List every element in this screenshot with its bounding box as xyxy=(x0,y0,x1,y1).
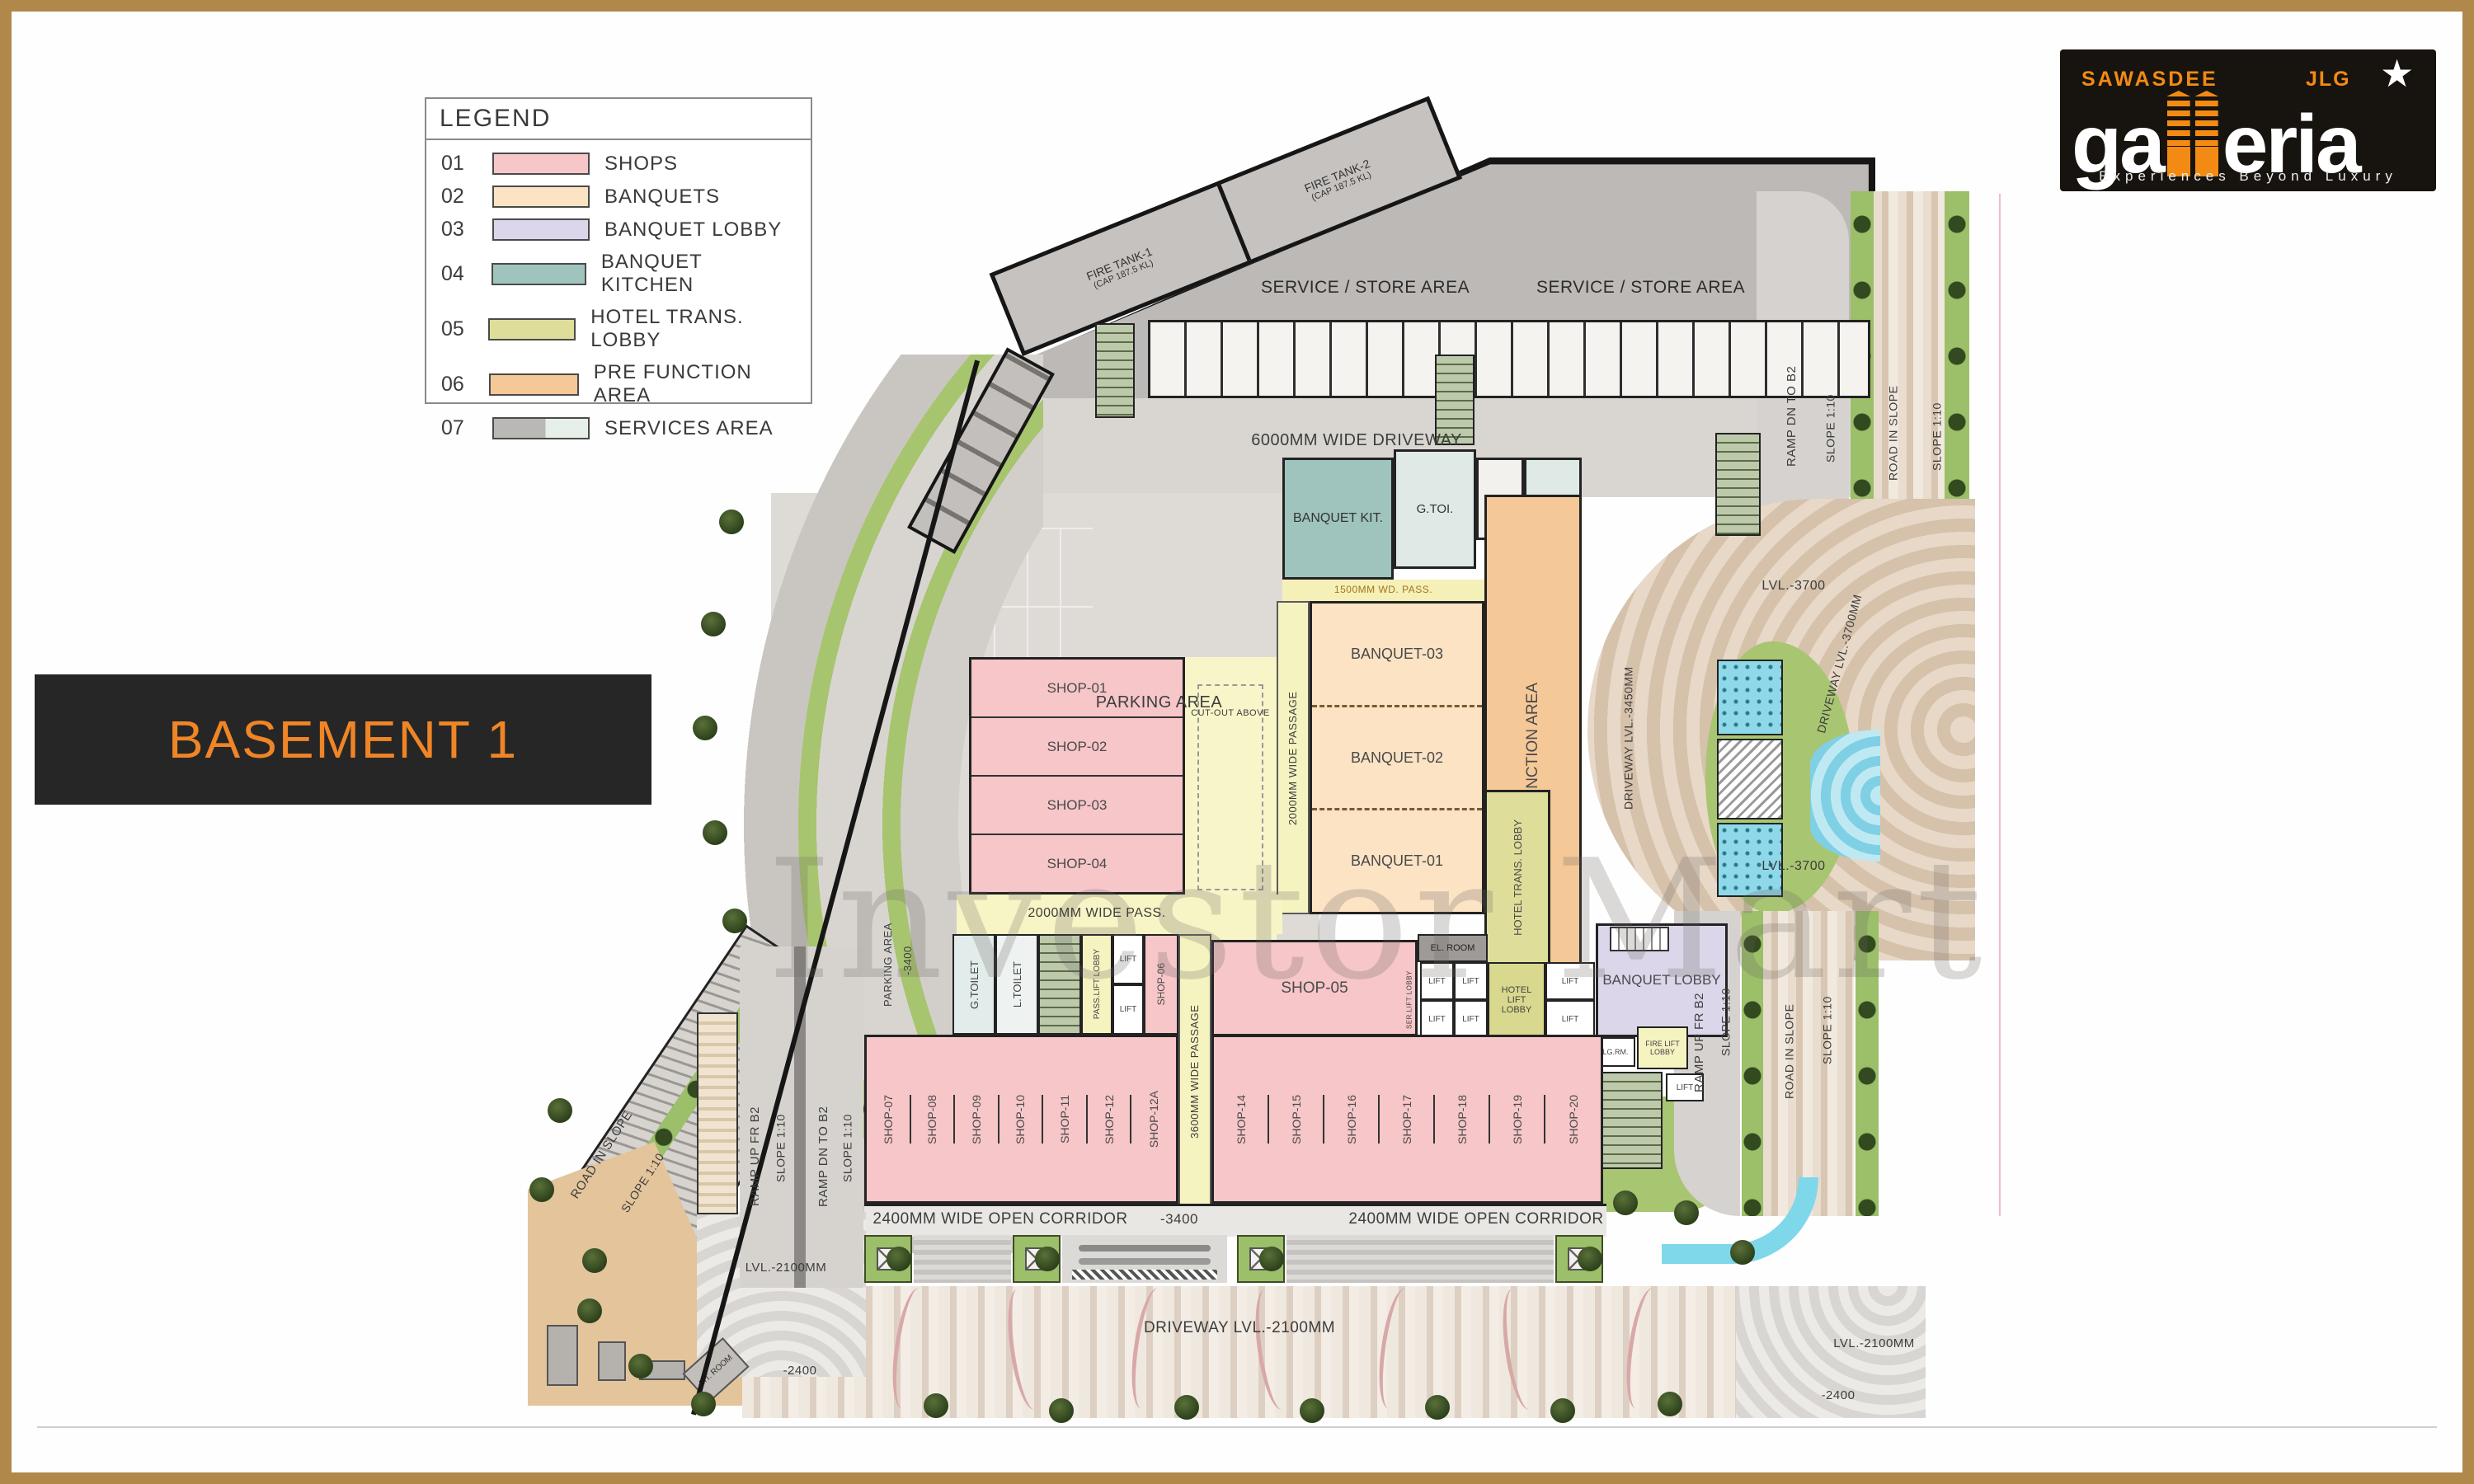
corridor-3400-value: -3400 xyxy=(1150,1209,1208,1230)
legend-label: SHOPS xyxy=(604,153,678,176)
stair-east xyxy=(1598,1072,1663,1169)
parking-stalls-row xyxy=(1148,320,1870,398)
banquet-hall-03: BANQUET-03 xyxy=(1312,603,1482,707)
slope-west-label-1: SLOPE 1:10 xyxy=(772,1072,790,1224)
service-store-label-1: SERVICE / STORE AREA xyxy=(1268,277,1462,298)
legend-label: PRE FUNCTION AREA xyxy=(594,361,796,407)
lg-room-label: LG.RM. xyxy=(1602,1048,1628,1056)
shops-left-block: SHOP-07 SHOP-08 SHOP-09 SHOP-10 SHOP-11 … xyxy=(864,1035,1178,1204)
passage-3600-label: 3600MM WIDE PASSAGE xyxy=(1182,960,1208,1183)
floor-plan-canvas: Investor Mart FIRE TANK-1 (CAP 187.5 KL)… xyxy=(0,0,2474,1484)
tree-icon xyxy=(582,1248,607,1273)
road-in-slope-ne-label: ROAD IN SLOPE xyxy=(1884,330,1903,536)
star-icon: ★ xyxy=(2380,51,2414,96)
driveway-3450-label: DRIVEWAY LVL.-3450MM xyxy=(1618,610,1639,866)
hatched-ramp-strip xyxy=(1072,1270,1217,1280)
lvl-2100-west-label: LVL.-2100MM xyxy=(736,1260,835,1276)
minus-2400-east-label: -2400 xyxy=(1811,1388,1865,1404)
fire-lift-lobby-label: FIRE LIFT LOBBY xyxy=(1641,1040,1684,1056)
tree-icon xyxy=(1425,1395,1450,1420)
banquet-03-label: BANQUET-03 xyxy=(1351,646,1443,663)
fire-lift-lobby: FIRE LIFT LOBBY xyxy=(1637,1026,1688,1069)
legend-label: BANQUET LOBBY xyxy=(604,218,782,242)
tree-icon xyxy=(1035,1247,1060,1271)
parking-3400-value: -3400 xyxy=(901,915,915,1006)
shop-17: SHOP-17 xyxy=(1380,1095,1435,1144)
entry-plaza-3 xyxy=(1286,1235,1554,1283)
pool-upper xyxy=(1717,660,1783,735)
tree-icon xyxy=(1049,1398,1074,1423)
legend-swatch-banquets xyxy=(492,185,590,208)
slope-ne-label-1: SLOPE 1:10 xyxy=(1821,346,1841,511)
tree-icon xyxy=(1259,1247,1284,1271)
brand-sawasdee: SAWASDEE xyxy=(2081,68,2218,92)
lvl-2100-east-label: LVL.-2100MM xyxy=(1823,1336,1926,1352)
legend-row-hotel-trans: 05 HOTEL TRANS. LOBBY xyxy=(441,306,796,352)
tree-icon xyxy=(887,1247,911,1271)
tree-icon xyxy=(1658,1392,1682,1416)
entry-steps-west xyxy=(697,1012,738,1214)
service-store-label-2: SERVICE / STORE AREA xyxy=(1544,277,1738,298)
legend-swatch-hotel-trans xyxy=(488,318,576,340)
slope-west-label-2: SLOPE 1:10 xyxy=(839,1072,857,1224)
shop-07: SHOP-07 xyxy=(867,1095,911,1144)
road-in-slope-se-label: ROAD IN SLOPE xyxy=(1780,948,1799,1154)
ser-lift-lobby-label: SER.LIFT LOBBY xyxy=(1402,962,1418,1038)
tree-icon xyxy=(577,1298,602,1323)
parking-area-label: PARKING AREA xyxy=(1087,693,1231,712)
legend-row-banquet-kitchen: 04 BANQUET KITCHEN xyxy=(441,251,796,297)
brand-tagline: Experiences Beyond Luxury xyxy=(2060,168,2436,185)
parking-3400-label: PARKING AREA xyxy=(879,903,897,1026)
passage-2000-label: 2000MM WIDE PASSAGE xyxy=(1280,635,1306,882)
tower-icon xyxy=(2167,91,2190,176)
brand-main-right: eria xyxy=(2222,112,2359,176)
legend-code: 02 xyxy=(441,185,477,209)
corridor-2400-left-label: 2400MM WIDE OPEN CORRIDOR xyxy=(881,1209,1120,1230)
corridor-2400-right-label: 2400MM WIDE OPEN CORRIDOR xyxy=(1357,1209,1596,1230)
banquet-kitchen-room: BANQUET KIT. xyxy=(1282,458,1394,580)
banquet-hall-02: BANQUET-02 xyxy=(1312,707,1482,811)
tree-icon xyxy=(529,1177,554,1202)
legend-code: 07 xyxy=(441,416,477,440)
shop-08: SHOP-08 xyxy=(911,1095,956,1144)
tree-icon xyxy=(1730,1240,1755,1265)
towers-icon xyxy=(2167,91,2218,176)
legend-label: BANQUET KITCHEN xyxy=(601,251,796,297)
shop-02: SHOP-02 xyxy=(971,718,1183,777)
slope-se-label-1: SLOPE 1:10 xyxy=(1717,948,1735,1097)
shop-15: SHOP-15 xyxy=(1269,1095,1324,1144)
legend-swatch-banquet-kitchen xyxy=(492,263,586,285)
sheet-rule-line xyxy=(37,1426,2437,1428)
shops-right-block: SHOP-14 SHOP-15 SHOP-16 SHOP-17 SHOP-18 … xyxy=(1211,1035,1603,1204)
entry-plaza-2 xyxy=(1062,1235,1227,1283)
passage-1500-label: 1500MM WD. PASS. xyxy=(1286,581,1480,599)
pass-2000-label: 2000MM WIDE PASS. xyxy=(1006,904,1188,923)
brand-jlg: JLG xyxy=(2306,68,2351,92)
tree-icon xyxy=(703,820,727,845)
legend-code: 06 xyxy=(441,373,474,397)
shop-18: SHOP-18 xyxy=(1435,1095,1490,1144)
legend-label: SERVICES AREA xyxy=(604,417,774,440)
lvl-3700-upper-label: LVL.-3700 xyxy=(1744,577,1843,595)
tree-icon xyxy=(701,612,726,636)
minus-2400-west-label: -2400 xyxy=(771,1363,829,1379)
ramp-up-se-label: RAMP UP FR B2 xyxy=(1689,940,1710,1146)
shop-20: SHOP-20 xyxy=(1545,1095,1601,1144)
lvl-3700-lower-label: LVL.-3700 xyxy=(1744,857,1843,876)
gents-toilet-room: G.TOI. xyxy=(1394,449,1476,569)
shop-12a: SHOP-12A xyxy=(1131,1091,1176,1148)
tree-icon xyxy=(691,1392,716,1416)
utility-box-1 xyxy=(547,1325,578,1386)
legend-box: LEGEND 01 SHOPS 02 BANQUETS 03 BANQUET L… xyxy=(425,97,812,404)
tree-icon xyxy=(722,909,747,933)
brand-logo: SAWASDEE JLG ★ ga eria Experiences Beyon… xyxy=(2060,49,2436,191)
ramp-up-west-label: RAMP UP FR B2 xyxy=(745,1059,766,1253)
shop-09: SHOP-09 xyxy=(955,1095,999,1144)
tree-icon xyxy=(1174,1395,1199,1420)
driveway-6000-label: 6000MM WIDE DRIVEWAY xyxy=(1253,430,1460,450)
brand-wordmark: ga eria xyxy=(2072,91,2359,176)
legend-swatch-shops xyxy=(492,153,590,175)
tree-icon xyxy=(1613,1190,1638,1215)
driveway-2100-label: DRIVEWAY LVL.-2100MM xyxy=(1128,1319,1351,1337)
legend-code: 05 xyxy=(441,317,473,341)
legend-row-banquet-lobby: 03 BANQUET LOBBY xyxy=(441,218,796,242)
gents-toilet-label: G.TOI. xyxy=(1417,502,1454,516)
stair-service-east xyxy=(1715,433,1761,536)
legend-code: 04 xyxy=(441,262,477,286)
legend-label: HOTEL TRANS. LOBBY xyxy=(590,306,796,352)
shop-12: SHOP-12 xyxy=(1088,1095,1132,1144)
legend-swatch-services xyxy=(492,417,590,439)
brand-main-left: ga xyxy=(2072,112,2163,176)
legend-row-services: 07 SERVICES AREA xyxy=(441,416,796,440)
bench xyxy=(1079,1258,1211,1265)
stair-service-west xyxy=(1095,323,1135,418)
entry-plaza-1 xyxy=(914,1235,1011,1283)
legend-code: 01 xyxy=(441,152,477,176)
legend-row-banquets: 02 BANQUETS xyxy=(441,185,796,209)
ramp-dn-ne-label: RAMP DN TO B2 xyxy=(1781,313,1803,519)
slope-ne-label-2: SLOPE 1:10 xyxy=(1928,355,1946,519)
watermark: Investor Mart xyxy=(767,824,1987,1017)
legend-swatch-banquet-lobby xyxy=(492,218,590,241)
tower-icon xyxy=(2195,91,2218,176)
legend-row-shops: 01 SHOPS xyxy=(441,152,796,176)
legend-row-pre-function: 06 PRE FUNCTION AREA xyxy=(441,361,796,407)
ramp-dn-west-label: RAMP DN TO B2 xyxy=(813,1059,835,1253)
tree-icon xyxy=(924,1393,948,1418)
banquet-kitchen-label: BANQUET KIT. xyxy=(1293,511,1383,526)
tree-icon xyxy=(628,1354,653,1378)
deck-hatched xyxy=(1717,739,1783,819)
tree-icon xyxy=(548,1098,572,1123)
shop-16: SHOP-16 xyxy=(1324,1095,1380,1144)
tree-icon xyxy=(719,510,744,534)
floor-title: BASEMENT 1 xyxy=(168,709,518,770)
slope-se-label-2: SLOPE 1:10 xyxy=(1818,956,1837,1105)
shop-11: SHOP-11 xyxy=(1043,1095,1088,1144)
shop-10: SHOP-10 xyxy=(999,1095,1044,1144)
bench xyxy=(1079,1245,1211,1252)
tree-icon xyxy=(1550,1398,1575,1423)
legend-code: 03 xyxy=(441,218,477,242)
plot-boundary-line xyxy=(1999,194,2001,1216)
banquet-02-label: BANQUET-02 xyxy=(1351,749,1443,767)
shop-14: SHOP-14 xyxy=(1214,1095,1269,1144)
shop-19: SHOP-19 xyxy=(1490,1095,1545,1144)
legend-title: LEGEND xyxy=(426,99,811,140)
legend-label: BANQUETS xyxy=(604,185,720,209)
tree-icon xyxy=(1578,1247,1602,1271)
tree-icon xyxy=(1300,1398,1324,1423)
floor-title-bar: BASEMENT 1 xyxy=(35,674,651,805)
utility-box-2 xyxy=(598,1341,626,1381)
tree-icon xyxy=(1674,1200,1699,1225)
tree-icon xyxy=(693,716,717,740)
legend-swatch-pre-function xyxy=(489,373,578,396)
